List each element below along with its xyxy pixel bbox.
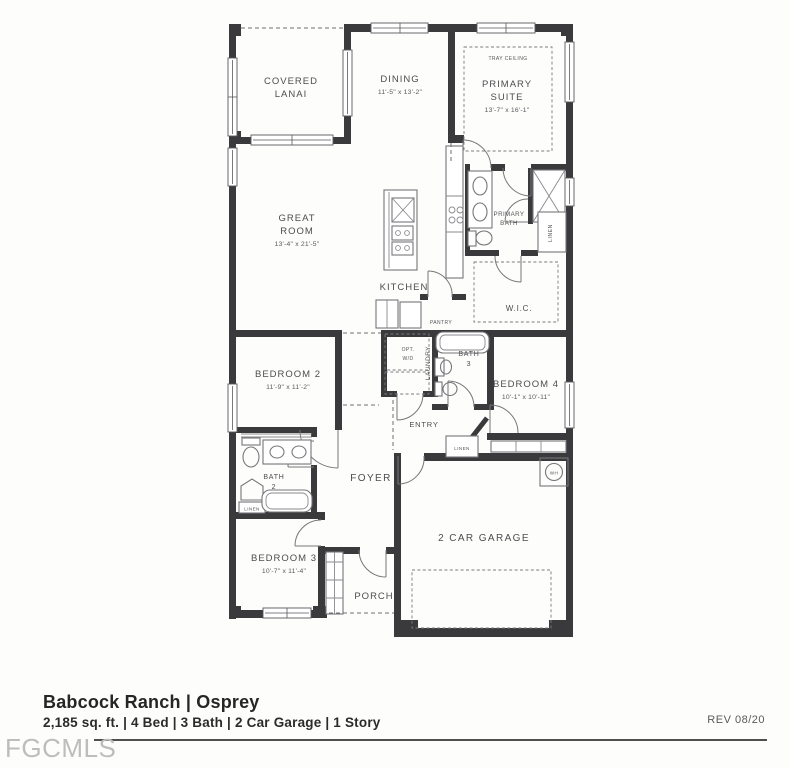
water-heater-label: WH (550, 471, 558, 476)
footer-divider (94, 739, 767, 741)
room-label-great-room-2: ROOM (280, 226, 314, 237)
room-dims-bedroom3: 10'-7" x 11'-4" (262, 568, 307, 575)
room-label-kitchen: KITCHEN (380, 282, 429, 293)
plan-specs: 2,185 sq. ft. | 4 Bed | 3 Bath | 2 Car G… (43, 715, 380, 730)
room-label-wic: W.I.C. (506, 304, 533, 313)
room-label-entry: ENTRY (409, 420, 438, 429)
room-label-bedroom4: BEDROOM 4 (493, 379, 559, 390)
floor-plan-sheet: COVERED LANAI DINING 11'-5" x 13'-2" TRA… (0, 0, 789, 768)
room-label-pantry: PANTRY (430, 320, 452, 326)
revision-label: REV 08/20 (707, 714, 765, 726)
room-label-great-room: GREAT (278, 213, 315, 224)
room-label-bedroom3: BEDROOM 3 (251, 553, 317, 564)
kitchen-island (384, 190, 417, 270)
opt-wd-label: OPT. (402, 347, 415, 353)
plan-title: Babcock Ranch | Osprey (43, 692, 260, 713)
room-label-laundry: LAUNDRY (425, 346, 432, 380)
room-label-covered-lanai-2: LANAI (275, 89, 307, 100)
room-dims-bedroom2: 11'-9" x 11'-2" (266, 384, 310, 391)
linen-label-bath2: LINEN (244, 507, 260, 512)
linen-label-primary-bath: LINEN (548, 224, 554, 242)
linen-label-entry: LINEN (454, 446, 470, 451)
room-label-primary-bath-2: BATH (500, 220, 518, 227)
bedroom4-closet (491, 441, 566, 452)
room-label-bath3-2: 3 (467, 361, 472, 368)
room-dims-dining: 11'-5" x 13'-2" (378, 89, 423, 96)
room-label-primary-suite: PRIMARY (482, 79, 532, 90)
porch-window-column (326, 552, 343, 614)
floor-plan-drawing: COVERED LANAI DINING 11'-5" x 13'-2" TRA… (0, 0, 789, 768)
wic-shelving (474, 262, 558, 322)
room-label-bedroom2: BEDROOM 2 (255, 369, 321, 380)
room-label-porch: PORCH (354, 591, 393, 602)
walls (229, 24, 573, 637)
room-label-bath2-2: 2 (272, 484, 277, 491)
kitchen-cabinet (400, 302, 421, 328)
room-label-primary-bath: PRIMARY (494, 211, 525, 218)
room-label-primary-suite-2: SUITE (491, 92, 524, 103)
opt-wd-label-2: W/D (403, 356, 414, 362)
room-dims-great-room: 13'-4" x 21'-5" (275, 241, 320, 248)
room-dims-primary-suite: 13'-7" x 16'-1" (485, 107, 530, 114)
mls-watermark: FGCMLS (5, 733, 116, 764)
room-label-dining: DINING (380, 74, 419, 85)
room-label-bath2: BATH (263, 474, 284, 481)
room-label-garage: 2 CAR GARAGE (438, 533, 530, 544)
garage-door-outline (412, 570, 551, 628)
tray-ceiling-label: TRAY CEILING (488, 56, 527, 62)
kitchen-counter (446, 146, 463, 278)
opt-washer-dryer-box2 (385, 372, 429, 394)
room-label-foyer: FOYER (350, 473, 391, 484)
bath3-fixtures (435, 332, 489, 396)
room-dims-bedroom4: 10'-1" x 10'-11" (502, 394, 551, 401)
room-label-covered-lanai: COVERED (264, 76, 318, 87)
room-label-bath3: BATH (458, 351, 479, 358)
